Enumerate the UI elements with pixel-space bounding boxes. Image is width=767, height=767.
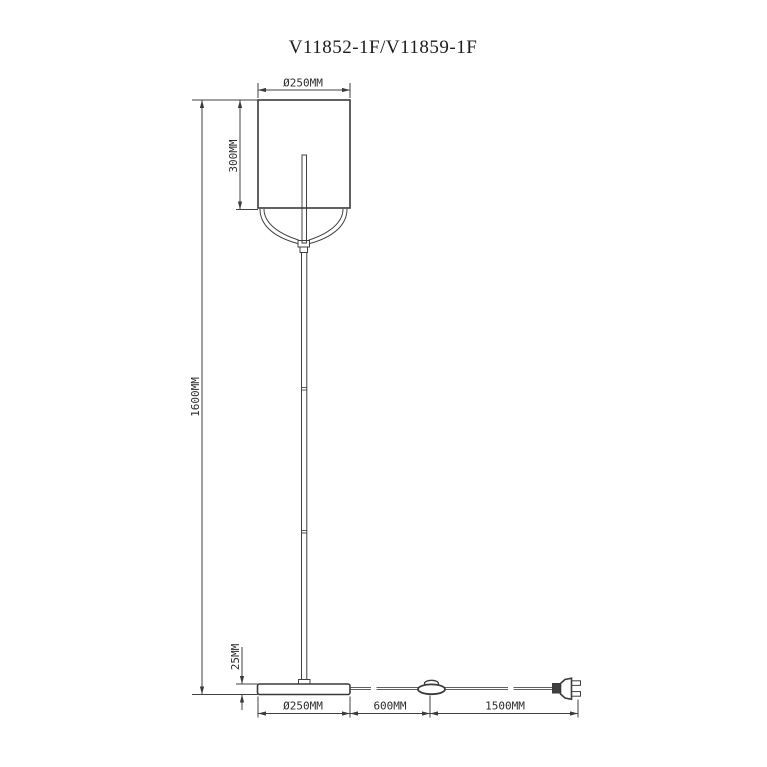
plug-strain-relief — [553, 684, 561, 694]
arrowhead — [200, 100, 204, 108]
dim-shade-height: 300MM — [227, 100, 242, 210]
arrowhead — [238, 202, 242, 210]
yoke-right-outer — [310, 209, 347, 244]
arrowhead — [200, 687, 204, 695]
dim-switch-distance-label: 600MM — [373, 700, 406, 713]
dim-base-height-label: 25MM — [229, 643, 242, 670]
lamp-base — [258, 684, 351, 695]
arrowhead — [342, 711, 350, 715]
arrowhead — [240, 695, 244, 703]
dim-shade-diameter-label: Ø250MM — [283, 77, 323, 90]
dim-bottom-chain: Ø250MM 600MM 1500MM — [258, 696, 578, 718]
arrowhead — [430, 711, 438, 715]
plug-prong-bottom — [572, 692, 581, 697]
arrowhead — [422, 711, 430, 715]
lamp-pole — [299, 253, 311, 685]
drawing-canvas: V11852-1F/V11859-1F — [0, 0, 767, 767]
lamp-shade — [258, 100, 350, 243]
shade-rod — [302, 155, 307, 243]
dim-shade-height-label: 300MM — [227, 139, 240, 172]
shade-outline — [258, 100, 350, 208]
yoke-collar — [298, 241, 310, 248]
yoke-right-inner — [309, 209, 343, 240]
dim-total-height-label: 1600MM — [189, 377, 202, 417]
switch-body — [418, 684, 445, 694]
arrowhead — [238, 100, 242, 108]
drawing-title: V11852-1F/V11859-1F — [289, 37, 478, 58]
arrowhead — [342, 88, 350, 92]
dim-plug-distance-label: 1500MM — [485, 700, 525, 713]
plug-prong-top — [572, 681, 581, 686]
shade-yoke — [260, 209, 347, 253]
dim-total-height: 1600MM — [189, 100, 204, 695]
power-cord — [350, 687, 554, 689]
yoke-left-inner — [264, 209, 299, 240]
yoke-left-outer — [260, 209, 298, 244]
dim-base-diameter-label: Ø250MM — [283, 700, 323, 713]
power-plug — [553, 678, 581, 699]
yoke-neck — [300, 247, 308, 253]
plug-body — [561, 678, 572, 699]
arrowhead — [570, 711, 578, 715]
foot-switch — [418, 680, 445, 694]
dim-base-height: 25MM — [229, 643, 244, 710]
technical-drawing: V11852-1F/V11859-1F — [0, 0, 767, 767]
dim-shade-diameter: Ø250MM — [258, 77, 350, 99]
arrowhead — [240, 676, 244, 684]
arrowhead — [350, 711, 358, 715]
base-outline — [258, 684, 351, 695]
arrowhead — [258, 711, 266, 715]
arrowhead — [258, 88, 266, 92]
